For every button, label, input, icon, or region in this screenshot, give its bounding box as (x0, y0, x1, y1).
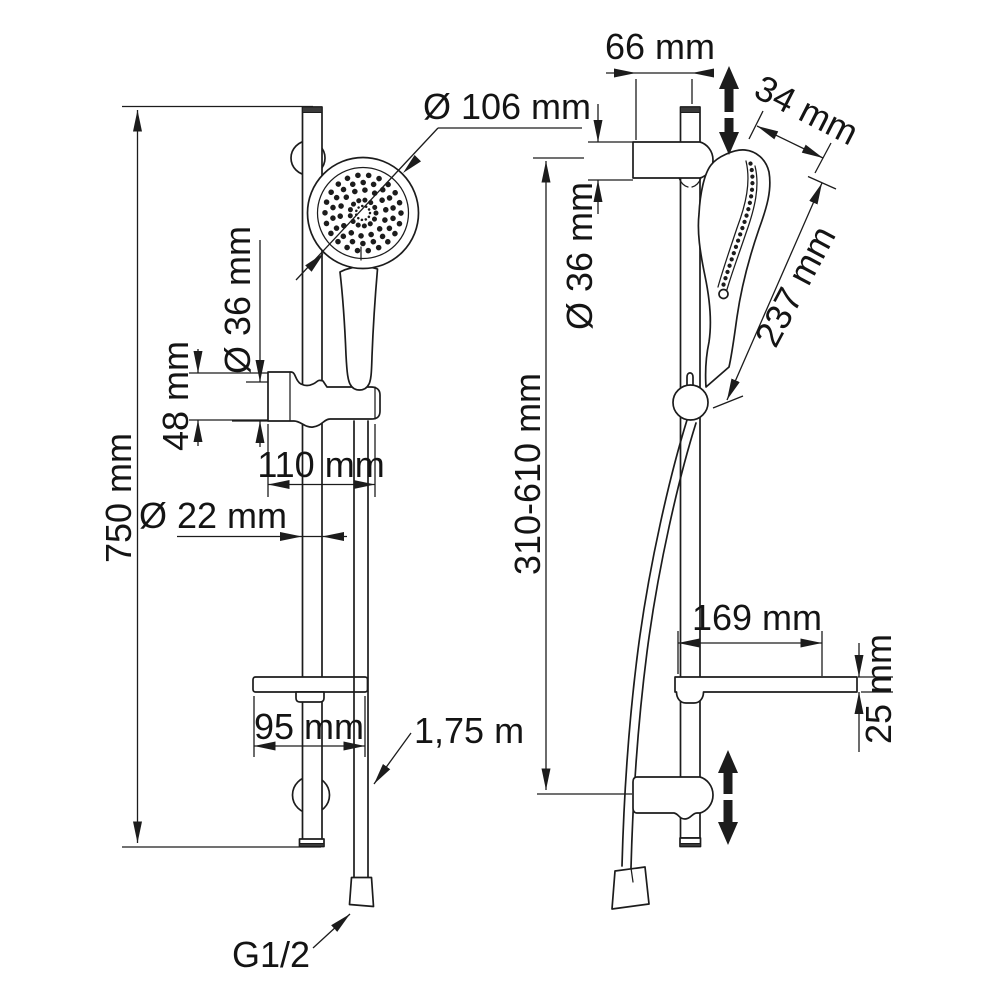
dim-thread: G1/2 (232, 914, 350, 975)
dim-dish-width-label: 95 mm (254, 706, 364, 747)
dim-wall-offset-label: 66 mm (605, 26, 715, 67)
side-hose-nut (612, 867, 649, 909)
dim-thread-label: G1/2 (232, 934, 310, 975)
dim-overall-height-label: 750 mm (98, 433, 139, 563)
dim-holder-height-label: 48 mm (155, 341, 196, 451)
dim-dish-thickness: 25 mm (855, 634, 900, 752)
dim-dish-depth-label: 169 mm (692, 597, 822, 638)
front-hose-nut (350, 878, 374, 907)
dim-dish-thickness-label: 25 mm (858, 634, 899, 744)
drawing-page: 750 mm Ø 106 mm Ø 36 mm 4 (0, 0, 1000, 1000)
side-wall-bracket (633, 142, 713, 178)
dim-holder-diameter-side-label: Ø 36 mm (559, 182, 600, 330)
front-soap-dish-stem (296, 692, 324, 702)
dim-adjustment-range-label: 310-610 mm (507, 373, 548, 575)
side-rail (681, 107, 701, 838)
dim-handshower-length-label: 237 mm (746, 219, 843, 353)
vertical-adjust-arrows-top-icon (719, 66, 739, 155)
vertical-adjust-arrows-bottom-icon (718, 750, 738, 845)
side-rail-top-cap (681, 107, 701, 113)
front-rail-top-cap (303, 107, 323, 113)
dim-hose-length: 1,75 m (374, 710, 524, 784)
side-glide-holder (633, 777, 713, 819)
dim-holder-width-label: 110 mm (257, 444, 384, 485)
dim-head-thickness-label: 34 mm (748, 67, 865, 153)
side-soap-dish (675, 677, 857, 703)
dim-head-thickness: 34 mm (748, 67, 865, 173)
dim-head-diameter-label: Ø 106 mm (423, 86, 591, 127)
technical-drawing: 750 mm Ø 106 mm Ø 36 mm 4 (0, 0, 1000, 1000)
front-handshower-handle (340, 267, 378, 390)
dim-rail-diameter-label: Ø 22 mm (139, 495, 287, 536)
side-face-strip-end (719, 290, 728, 299)
dim-holder-diameter-front-label: Ø 36 mm (217, 226, 258, 374)
front-soap-dish (253, 677, 368, 692)
dim-holder-diameter-front: Ø 36 mm (217, 226, 268, 447)
front-rail-bottom-cap-band (300, 844, 325, 847)
dim-hose-length-label: 1,75 m (414, 710, 524, 751)
side-rail-bottom-cap-band (680, 844, 701, 847)
dim-holder-diameter-side: Ø 36 mm (559, 104, 633, 330)
side-holder-ball (673, 385, 708, 420)
